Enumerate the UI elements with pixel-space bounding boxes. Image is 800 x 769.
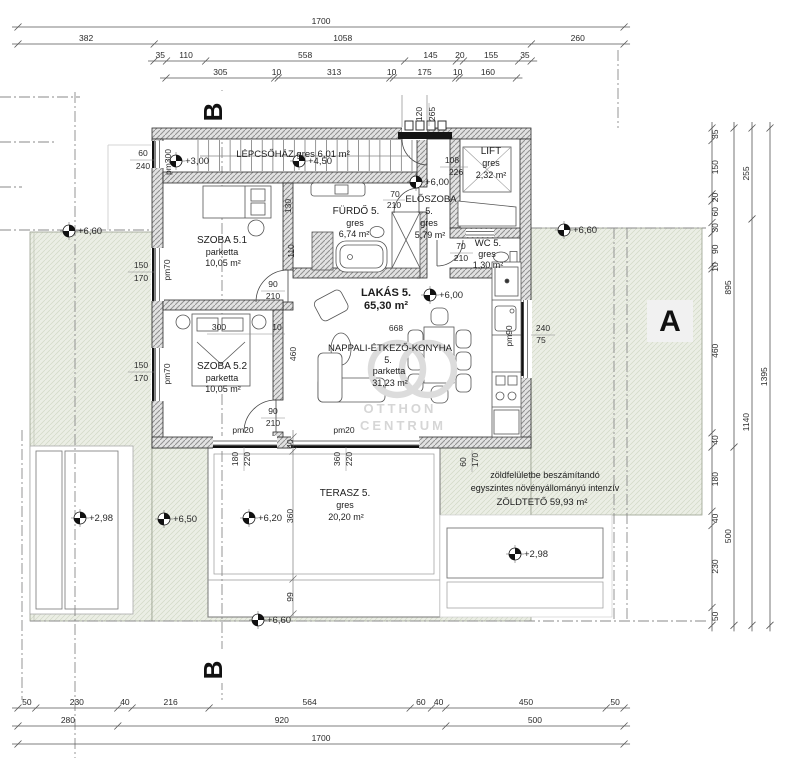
- dim-value: 90: [710, 244, 720, 254]
- dim-value: 150: [710, 160, 720, 174]
- dim-label: 170: [470, 453, 480, 467]
- dim-label: 210: [387, 200, 401, 210]
- dim-value: 40: [710, 435, 720, 445]
- dim-value: 920: [275, 715, 289, 725]
- room-label: gres: [346, 218, 364, 228]
- room-label: LIFT: [481, 146, 502, 157]
- dim-value: 20: [710, 193, 720, 203]
- dimension-chain: [12, 705, 630, 712]
- dim-label: 170: [134, 373, 148, 383]
- duct-column: [312, 232, 333, 270]
- level-marker: [421, 286, 439, 304]
- sofa-icon: [318, 353, 342, 402]
- dim-value: 180: [710, 472, 720, 486]
- room-label: zöldfelületbe beszámítandó: [490, 470, 600, 480]
- dim-label: pm70: [162, 363, 172, 385]
- room-label: parketta: [373, 366, 406, 376]
- dim-value: 35: [156, 50, 166, 60]
- room-label: 2,32 m²: [476, 170, 507, 180]
- room-label: 20,20 m²: [328, 512, 364, 522]
- dim-value: 1395: [759, 367, 769, 386]
- dimension-chain: [749, 122, 756, 631]
- room-label: FÜRDŐ 5.: [333, 203, 380, 217]
- room-label: LÉPCSŐHÁZ gres 6,01 m²: [236, 149, 350, 160]
- dim-value: 460: [710, 343, 720, 357]
- dim-value: 50: [710, 611, 720, 621]
- dim-label: 240: [536, 323, 550, 333]
- dim-label: 70: [456, 241, 466, 251]
- room-label: 10,05 m²: [205, 258, 241, 268]
- dim-label: 180: [230, 452, 240, 466]
- nightstand-icon: [252, 315, 266, 329]
- floor-plan-page: 1700382105826035110558145201553530510313…: [0, 0, 800, 769]
- dim-label: 150: [134, 260, 148, 270]
- chair-icon: [456, 330, 471, 348]
- dim-label: 90: [268, 406, 278, 416]
- dim-label: 110: [286, 244, 296, 258]
- section-marker: B: [198, 661, 228, 680]
- room-label: 31,23 m²: [372, 378, 408, 388]
- dim-value: 10: [272, 67, 282, 77]
- dim-value: 1700: [312, 733, 331, 743]
- level-value: +6,00: [425, 177, 449, 188]
- dim-value: 1700: [312, 16, 331, 26]
- dim-value: 230: [710, 559, 720, 573]
- dim-value: 35: [520, 50, 530, 60]
- dim-value: 30: [710, 223, 720, 233]
- chair-icon: [431, 308, 448, 325]
- section-marker: B: [198, 103, 228, 122]
- dim-label: 226: [449, 167, 463, 177]
- dim-value: 450: [519, 697, 533, 707]
- terrace-area: [208, 448, 440, 617]
- dim-label: pm90: [504, 325, 514, 347]
- level-value: +2,98: [89, 513, 113, 524]
- dim-label: 130: [283, 199, 293, 213]
- dim-value: 305: [213, 67, 227, 77]
- dim-label: 220: [344, 452, 354, 466]
- level-value: +2,98: [524, 549, 548, 560]
- dim-value: 20: [455, 50, 465, 60]
- room-label: parketta: [206, 373, 239, 383]
- dim-label: 360: [332, 452, 342, 466]
- dim-label: 90: [268, 279, 278, 289]
- dim-value: 145: [423, 50, 437, 60]
- dim-value: 313: [327, 67, 341, 77]
- dim-value: 110: [179, 50, 193, 60]
- room-label: LAKÁS 5.: [361, 286, 411, 299]
- dim-label: pm20: [232, 425, 254, 435]
- dim-value: 160: [481, 67, 495, 77]
- level-value: +6,60: [267, 615, 291, 626]
- dim-value: 40: [434, 697, 444, 707]
- dim-label: 60: [458, 457, 468, 467]
- dimension-chain: [148, 58, 537, 65]
- room-label: 5,79 m²: [415, 230, 446, 240]
- dimension-chain: [12, 41, 630, 48]
- dim-label: 210: [266, 418, 280, 428]
- room-label: 6,74 m²: [339, 229, 370, 239]
- room-label: 5.: [425, 206, 433, 216]
- dim-label: pm20: [333, 425, 355, 435]
- dim-value: 895: [723, 280, 733, 294]
- dimension-chain: [731, 122, 738, 631]
- dim-value: 50: [610, 697, 620, 707]
- level-value: +6,50: [173, 514, 197, 525]
- dim-label: 150: [134, 360, 148, 370]
- dim-label: 99: [285, 592, 295, 602]
- skylight-left: [30, 446, 133, 614]
- dim-label: 265: [427, 107, 437, 121]
- dim-label: 70: [390, 189, 400, 199]
- dim-label: 668: [389, 323, 403, 333]
- dim-value: 155: [484, 50, 498, 60]
- room-label: gres: [482, 158, 500, 168]
- nightstand-icon: [248, 220, 264, 236]
- watermark-text: OTTHON: [364, 401, 437, 416]
- dim-label: 300: [212, 322, 226, 332]
- dim-label: 170: [134, 273, 148, 283]
- room-label: 65,30 m²: [364, 300, 408, 312]
- armchair-icon: [313, 288, 350, 322]
- dim-value: 382: [79, 33, 93, 43]
- dim-label: 108: [445, 155, 459, 165]
- dim-label: 40: [285, 439, 295, 449]
- room-label: ELŐSZOBA: [405, 194, 457, 205]
- dim-label: 120: [414, 107, 424, 121]
- dim-value: 500: [528, 715, 542, 725]
- room-label: parketta: [206, 247, 239, 257]
- dim-value: 10: [453, 67, 463, 77]
- floor-plan-drawing: 1700382105826035110558145201553530510313…: [0, 0, 800, 769]
- dim-value: 40: [710, 513, 720, 523]
- fridge-icon: [494, 410, 519, 434]
- room-label: 5.: [384, 355, 392, 365]
- dim-label: 60: [138, 148, 148, 158]
- dim-label: 360: [285, 509, 295, 523]
- chair-icon: [456, 352, 471, 370]
- room-label: NAPPALI-ÉTKEZŐ-KONYHA: [328, 343, 453, 354]
- dim-label: 210: [454, 253, 468, 263]
- dim-value: 10: [710, 262, 720, 272]
- room-label: gres: [478, 249, 496, 259]
- dim-value: 255: [741, 166, 751, 180]
- level-value: +6,60: [78, 226, 102, 237]
- room-label: gres: [420, 218, 438, 228]
- dim-value: 40: [120, 697, 130, 707]
- dim-value: 10: [387, 67, 397, 77]
- dim-value: 230: [70, 697, 84, 707]
- washbasin-icon: [370, 227, 384, 238]
- dim-label: 220: [242, 452, 252, 466]
- room-label: gres: [336, 500, 354, 510]
- watermark-text: CENTRUM: [360, 418, 446, 433]
- chair-icon: [456, 374, 471, 392]
- section-marker: A: [659, 305, 681, 338]
- dim-label: 210: [266, 291, 280, 301]
- dim-value: 60: [710, 207, 720, 217]
- room-label: egyszintes növényállományú intenzív: [471, 483, 620, 493]
- room-label: SZOBA 5.1: [197, 235, 247, 246]
- dim-value: 175: [418, 67, 432, 77]
- dim-label: 10: [272, 322, 282, 332]
- dim-value: 280: [61, 715, 75, 725]
- dim-value: 564: [303, 697, 317, 707]
- dim-value: 1058: [333, 33, 352, 43]
- dim-value: 558: [298, 50, 312, 60]
- dim-value: 500: [723, 529, 733, 543]
- room-label: WC 5.: [475, 238, 501, 249]
- dim-label: pm300: [163, 149, 173, 175]
- skylight-right: [440, 515, 612, 617]
- dim-label: 240: [136, 161, 150, 171]
- lift-pit: [458, 201, 516, 226]
- level-value: +6,00: [439, 290, 463, 301]
- level-value: +6,20: [258, 513, 282, 524]
- room-label: 1,30 m²: [473, 260, 504, 270]
- dim-value: 60: [416, 697, 426, 707]
- level-value: +3,00: [185, 156, 209, 167]
- nightstand-icon: [176, 315, 190, 329]
- dim-label: pm70: [162, 259, 172, 281]
- room-label: SZOBA 5.2: [197, 361, 247, 372]
- dim-value: 50: [22, 697, 32, 707]
- level-value: +6,60: [573, 225, 597, 236]
- dim-value: 216: [163, 697, 177, 707]
- dim-value: 260: [571, 33, 585, 43]
- room-label: 10,05 m²: [205, 384, 241, 394]
- dim-label: 460: [288, 347, 298, 361]
- room-label: ZÖLDTETŐ 59,93 m²: [497, 497, 588, 508]
- dim-value: 1140: [741, 413, 751, 432]
- dim-value: 35: [710, 129, 720, 139]
- dim-label: 75: [536, 335, 546, 345]
- room-label: TERASZ 5.: [320, 488, 371, 499]
